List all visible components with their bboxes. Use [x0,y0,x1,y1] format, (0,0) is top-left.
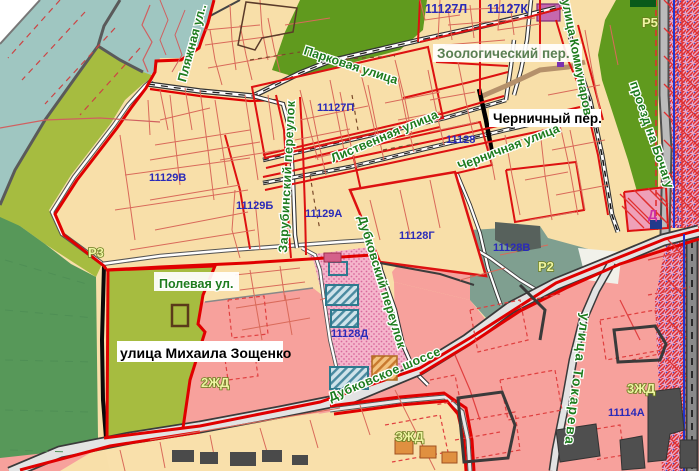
svg-text:Черничный пер.: Черничный пер. [493,111,602,126]
svg-text:11127Л: 11127Л [425,2,467,16]
svg-text:Полевая ул.: Полевая ул. [159,277,233,291]
svg-text:Р3: Р3 [88,245,104,260]
svg-text:3ЖД: 3ЖД [627,381,656,396]
svg-text:11127П: 11127П [317,102,354,114]
svg-text:Р5: Р5 [642,15,658,30]
svg-text:11128Д: 11128Д [331,328,368,340]
svg-text:11129А: 11129А [305,208,342,220]
svg-text:11114А: 11114А [608,407,645,419]
svg-text:Д: Д [648,207,658,222]
svg-text:2ЖД: 2ЖД [201,375,230,390]
svg-text:Р2: Р2 [538,259,554,274]
svg-text:11129Б: 11129Б [236,200,273,212]
svg-text:11128: 11128 [446,134,475,146]
svg-text:11127К: 11127К [487,2,528,16]
svg-text:11129В: 11129В [149,172,186,184]
svg-text:ЗЖД: ЗЖД [395,429,425,444]
svg-text:улица Михаила Зощенко: улица Михаила Зощенко [120,345,291,361]
svg-text:11128Г: 11128Г [399,230,435,242]
svg-text:Зоологический пер.: Зоологический пер. [437,46,570,61]
svg-text:11128В: 11128В [493,242,530,254]
